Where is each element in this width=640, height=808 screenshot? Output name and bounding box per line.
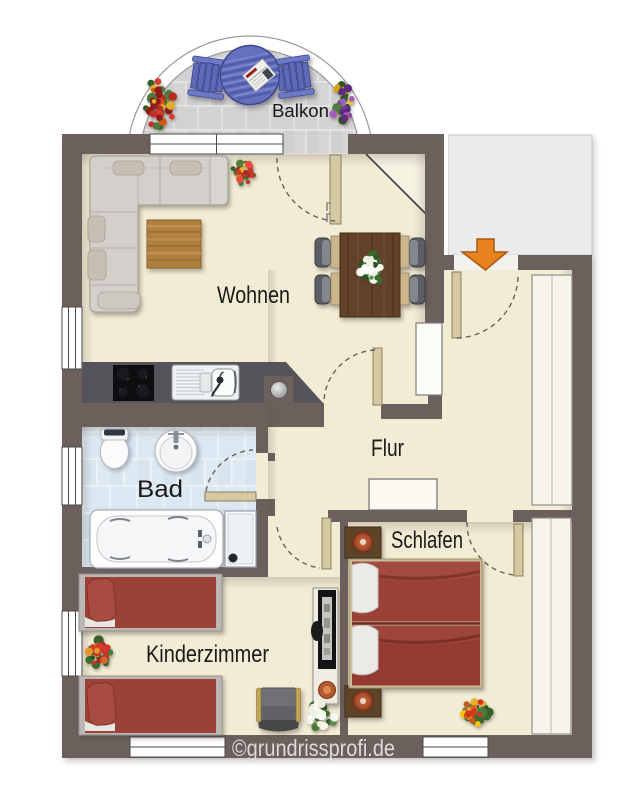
svg-text:Kinderzimmer: Kinderzimmer — [146, 641, 269, 668]
svg-text:©grundrissprofi.de: ©grundrissprofi.de — [232, 735, 395, 761]
svg-text:Bad: Bad — [137, 476, 183, 503]
svg-text:Schlafen: Schlafen — [391, 527, 463, 554]
svg-text:Wohnen: Wohnen — [217, 282, 290, 309]
svg-text:Flur: Flur — [371, 435, 404, 462]
svg-text:Balkon: Balkon — [272, 101, 329, 121]
